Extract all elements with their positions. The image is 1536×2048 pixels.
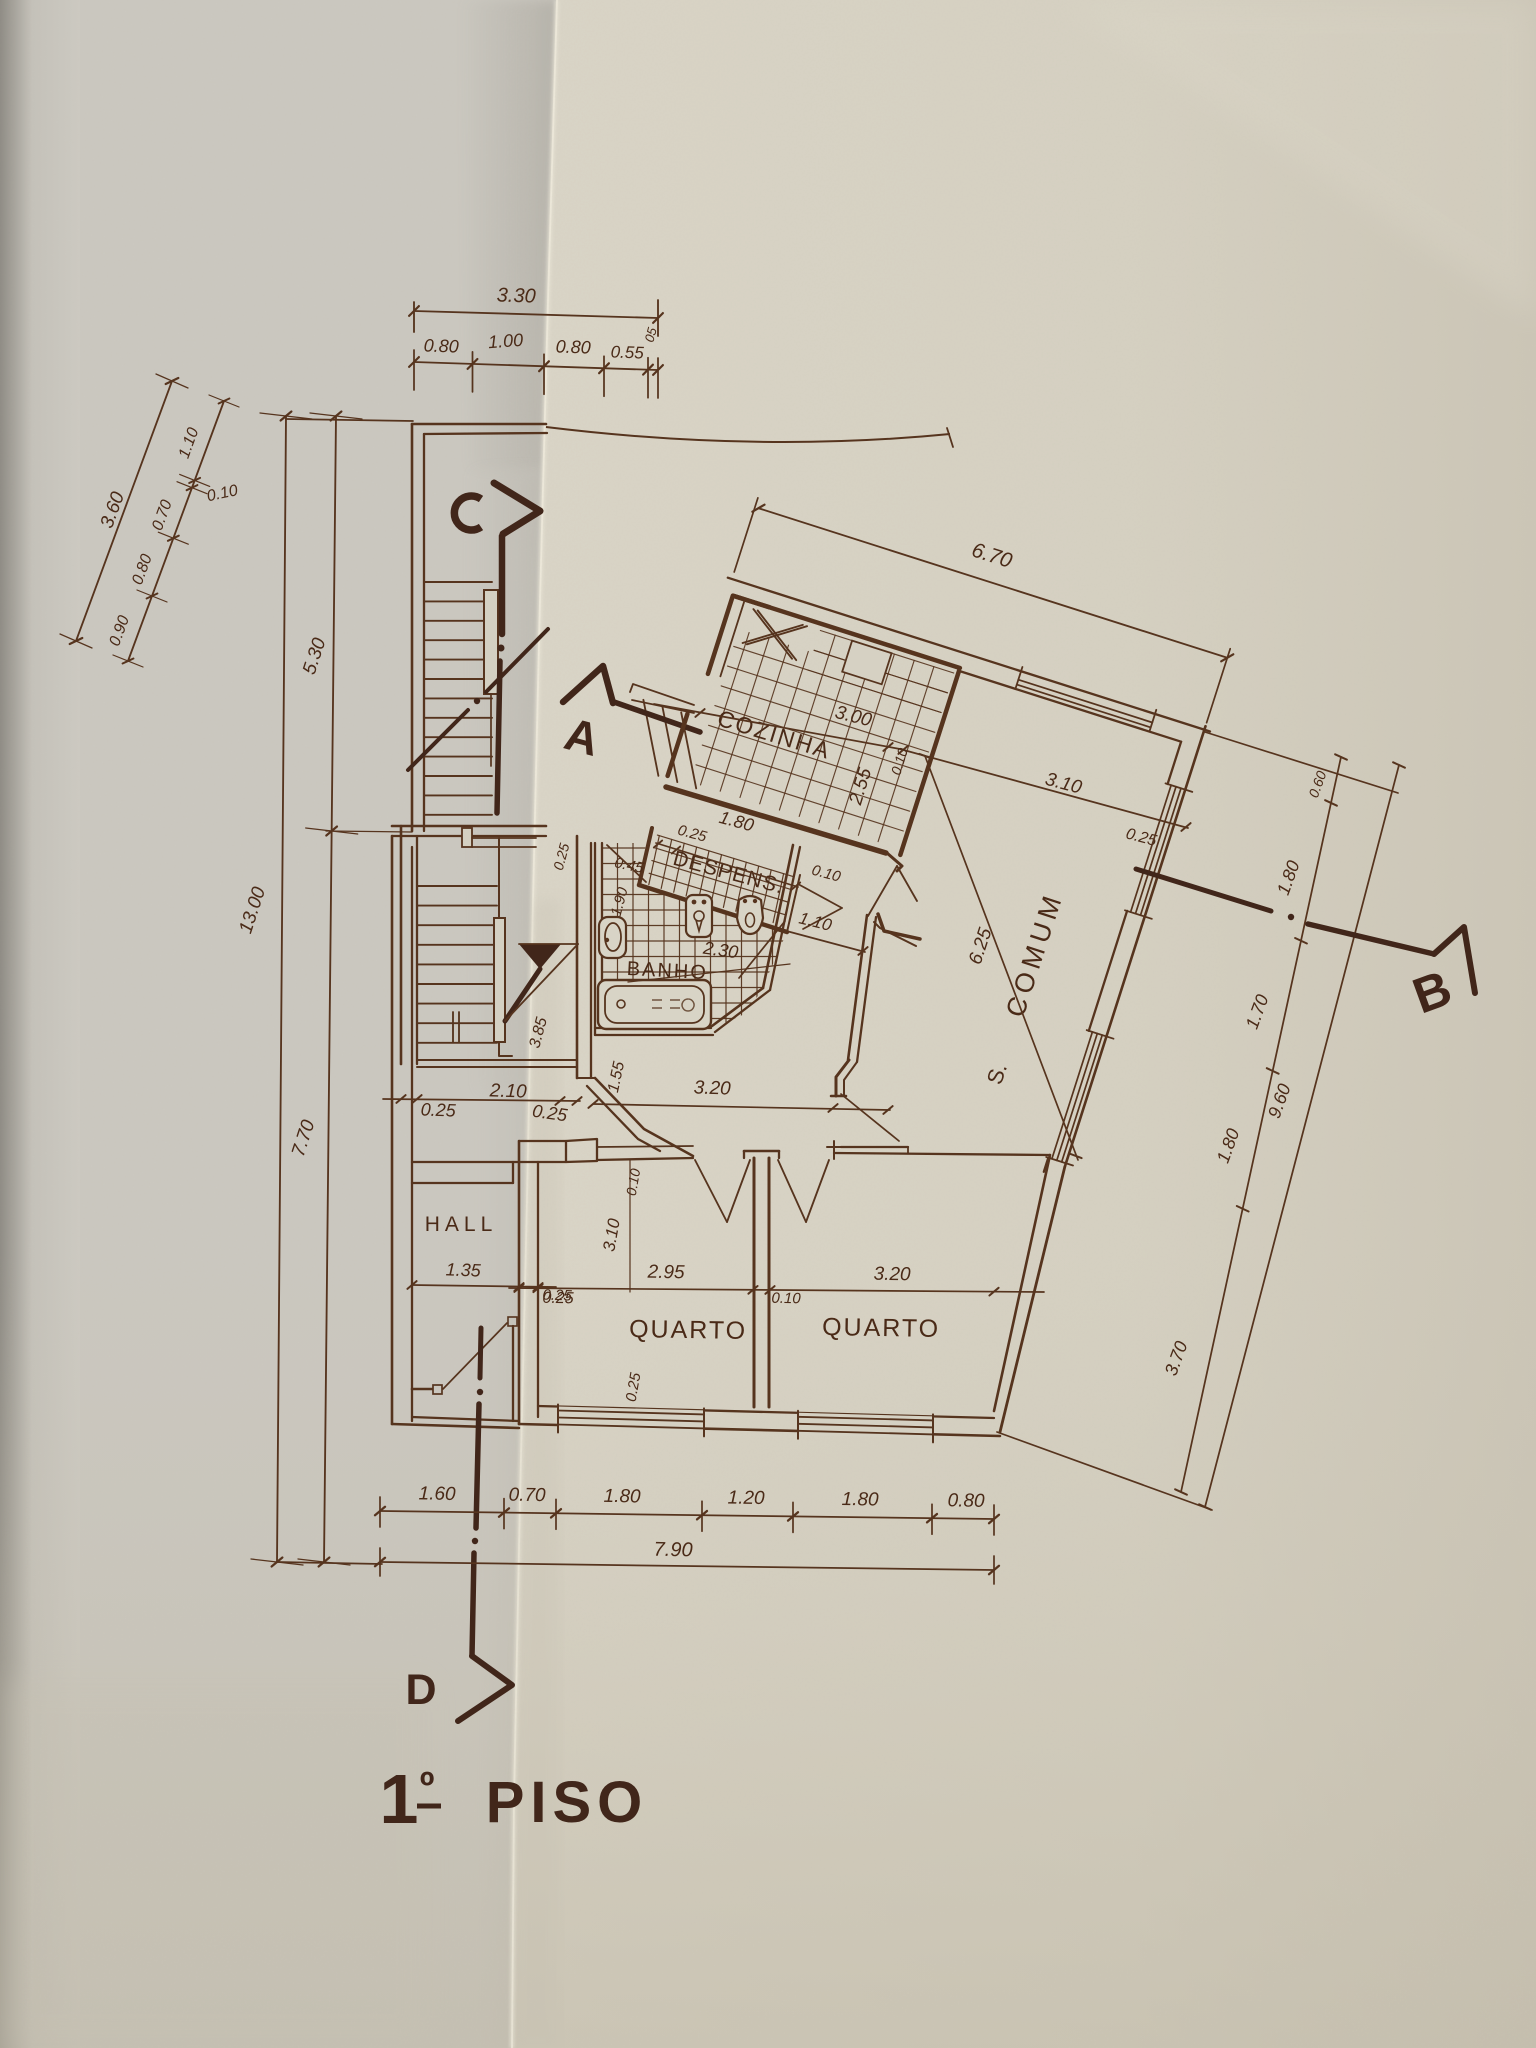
svg-text:7.90: 7.90 xyxy=(653,1539,692,1562)
svg-text:0.70: 0.70 xyxy=(508,1485,546,1507)
svg-text:3.30: 3.30 xyxy=(496,284,536,307)
svg-text:0.80: 0.80 xyxy=(947,1490,985,1512)
svg-text:3.20: 3.20 xyxy=(873,1264,911,1286)
svg-text:1: 1 xyxy=(380,1760,419,1838)
svg-text:2.95: 2.95 xyxy=(646,1262,685,1284)
svg-text:HALL: HALL xyxy=(425,1213,498,1236)
svg-text:1.60: 1.60 xyxy=(418,1483,456,1505)
svg-text:1.80: 1.80 xyxy=(603,1486,641,1508)
svg-text:0.55: 0.55 xyxy=(610,342,644,362)
svg-text:0.80: 0.80 xyxy=(423,335,459,356)
svg-text:D: D xyxy=(405,1666,436,1714)
svg-text:1.80: 1.80 xyxy=(841,1489,879,1511)
svg-text:PISO: PISO xyxy=(486,1770,649,1835)
svg-text:1.00: 1.00 xyxy=(487,330,523,352)
svg-text:QUARTO: QUARTO xyxy=(629,1315,748,1345)
svg-text:0.25: 0.25 xyxy=(420,1099,457,1120)
svg-text:QUARTO: QUARTO xyxy=(822,1313,941,1343)
svg-text:0.10: 0.10 xyxy=(771,1290,801,1308)
svg-text:0.25: 0.25 xyxy=(542,1290,574,1308)
svg-text:º: º xyxy=(420,1765,435,1809)
svg-text:3.20: 3.20 xyxy=(693,1077,731,1099)
svg-text:1.20: 1.20 xyxy=(727,1487,765,1509)
svg-text:0.80: 0.80 xyxy=(555,336,591,357)
svg-text:1.35: 1.35 xyxy=(445,1259,482,1280)
